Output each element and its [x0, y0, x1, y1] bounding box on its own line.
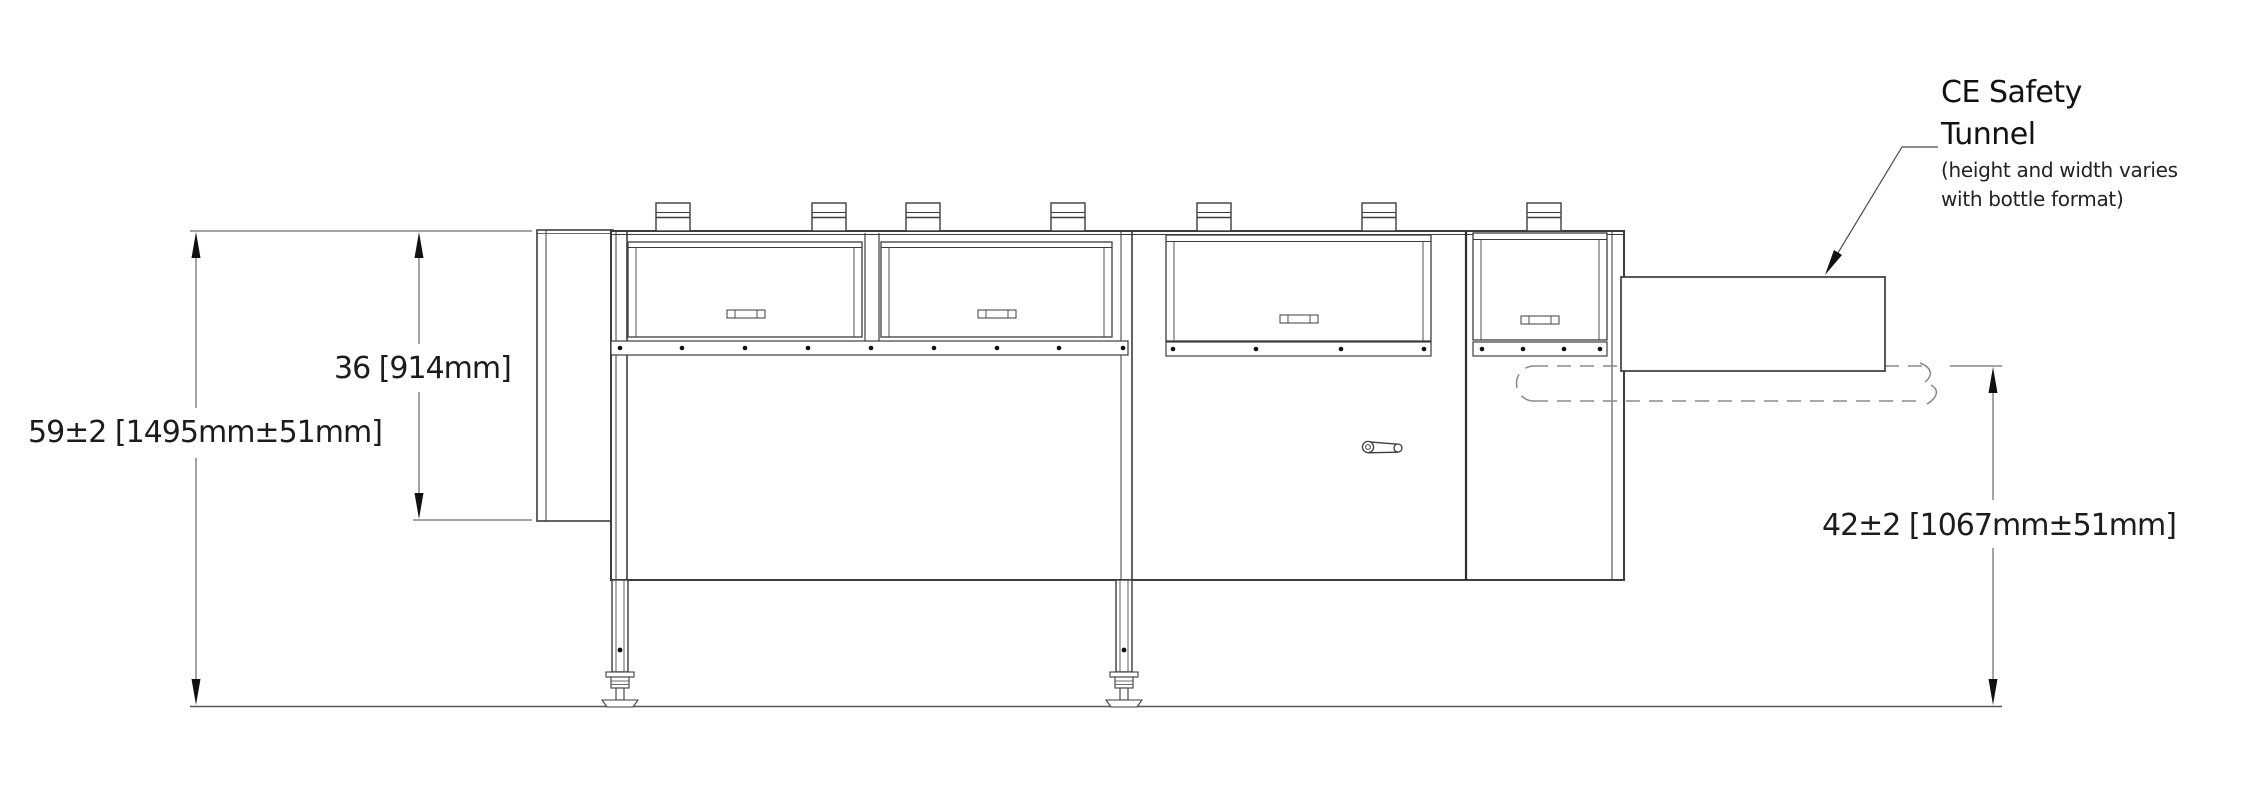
leg-left: [602, 580, 638, 707]
tunnel-leader: [1825, 147, 1938, 275]
door-handle-2: [978, 310, 1016, 318]
vent-cap-6: [1362, 203, 1396, 231]
tunnel-callout-title-line1: CE Safety: [1941, 72, 2082, 114]
door-1: [628, 242, 862, 337]
door-handle-3: [1280, 315, 1318, 323]
dim-label-overall-height: 59±2 [1495mm±51mm]: [28, 416, 382, 449]
machine-elevation-drawing: 59±2 [1495mm±51mm] 36 [914mm] 42±2 [1067…: [0, 0, 2255, 786]
vent-cap-5: [1197, 203, 1231, 231]
dim-arrow-down: [415, 493, 424, 519]
ce-safety-tunnel-box: [1621, 277, 1885, 371]
door-2: [881, 242, 1112, 337]
drawing-linework: [0, 0, 2255, 786]
rivet-rail-2: [1166, 342, 1431, 356]
dim-arrow-up: [1989, 367, 1998, 393]
vent-cap-2: [812, 203, 846, 231]
dim-arrow-up: [415, 232, 424, 258]
tunnel-callout-title: CE Safety Tunnel: [1941, 72, 2082, 156]
leveling-foot-left: [602, 672, 638, 707]
dim-arrow-up: [192, 232, 201, 258]
rivet-rail-3: [1473, 342, 1607, 356]
rivet-rail-1: [611, 341, 1128, 355]
leader-arrowhead: [1825, 250, 1842, 275]
dim-arrow-down: [1989, 679, 1998, 705]
door-4: [1473, 233, 1607, 340]
leg-right: [1106, 580, 1142, 707]
vent-cap-7: [1527, 203, 1561, 231]
leveling-foot-right: [1106, 672, 1142, 707]
conveyor-break-symbol: [1920, 363, 1936, 404]
vent-cap-3: [906, 203, 940, 231]
door-3: [1166, 235, 1431, 341]
left-cabinet: [537, 230, 613, 521]
door-handle-1: [727, 310, 765, 318]
vent-cap-1: [656, 203, 690, 231]
dim-arrow-down: [192, 679, 201, 705]
vent-cap-4: [1051, 203, 1085, 231]
dim-label-enclosure-height: 36 [914mm]: [334, 352, 511, 385]
dim-overall-height: [192, 232, 201, 705]
door-handle-4: [1521, 316, 1559, 324]
tunnel-callout-note-line2: with bottle format): [1941, 185, 2178, 214]
tunnel-callout-note-line1: (height and width varies: [1941, 156, 2178, 185]
vent-caps: [656, 203, 1561, 231]
leader-line: [1827, 147, 1938, 271]
dim-label-conveyor-height: 42±2 [1067mm±51mm]: [1822, 509, 2176, 542]
tunnel-callout-title-line2: Tunnel: [1941, 114, 2082, 156]
tunnel-callout-note: (height and width varies with bottle for…: [1941, 156, 2178, 214]
